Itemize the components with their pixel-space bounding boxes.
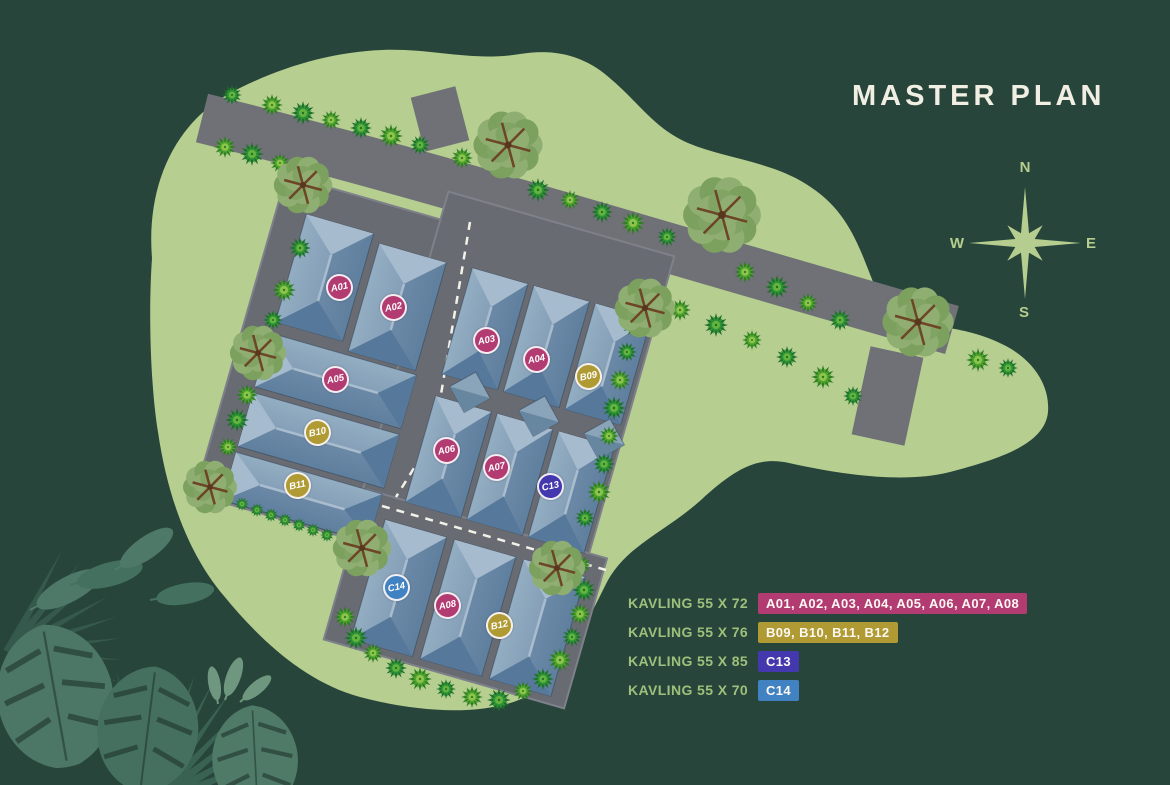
compass-north-label: N xyxy=(1020,159,1031,176)
legend-chip: C13 xyxy=(758,651,799,672)
legend-label: KAVLING 55 X 70 xyxy=(628,682,756,698)
compass-south-label: S xyxy=(1019,304,1029,321)
page-title: MASTER PLAN xyxy=(852,80,1102,113)
legend-row-55x76: KAVLING 55 X 76 B09, B10, B11, B12 xyxy=(628,621,1027,643)
legend-chip: B09, B10, B11, B12 xyxy=(758,622,898,643)
legend-label: KAVLING 55 X 85 xyxy=(628,653,756,669)
compass-rose: N E S W xyxy=(950,159,1096,321)
legend-row-55x72: KAVLING 55 X 72 A01, A02, A03, A04, A05,… xyxy=(628,592,1027,614)
legend-row-55x85: KAVLING 55 X 85 C13 xyxy=(628,650,1027,672)
legend-label: KAVLING 55 X 76 xyxy=(628,624,756,640)
master-plan-canvas: N E S W MASTER PLAN KAVLING 55 X 72 A01,… xyxy=(0,0,1170,785)
legend-label: KAVLING 55 X 72 xyxy=(628,595,756,611)
legend: KAVLING 55 X 72 A01, A02, A03, A04, A05,… xyxy=(628,592,1027,701)
compass-east-label: E xyxy=(1086,235,1096,252)
legend-chip: A01, A02, A03, A04, A05, A06, A07, A08 xyxy=(758,593,1027,614)
legend-chip: C14 xyxy=(758,680,799,701)
legend-row-55x70: KAVLING 55 X 70 C14 xyxy=(628,679,1027,701)
compass-west-label: W xyxy=(950,235,965,252)
